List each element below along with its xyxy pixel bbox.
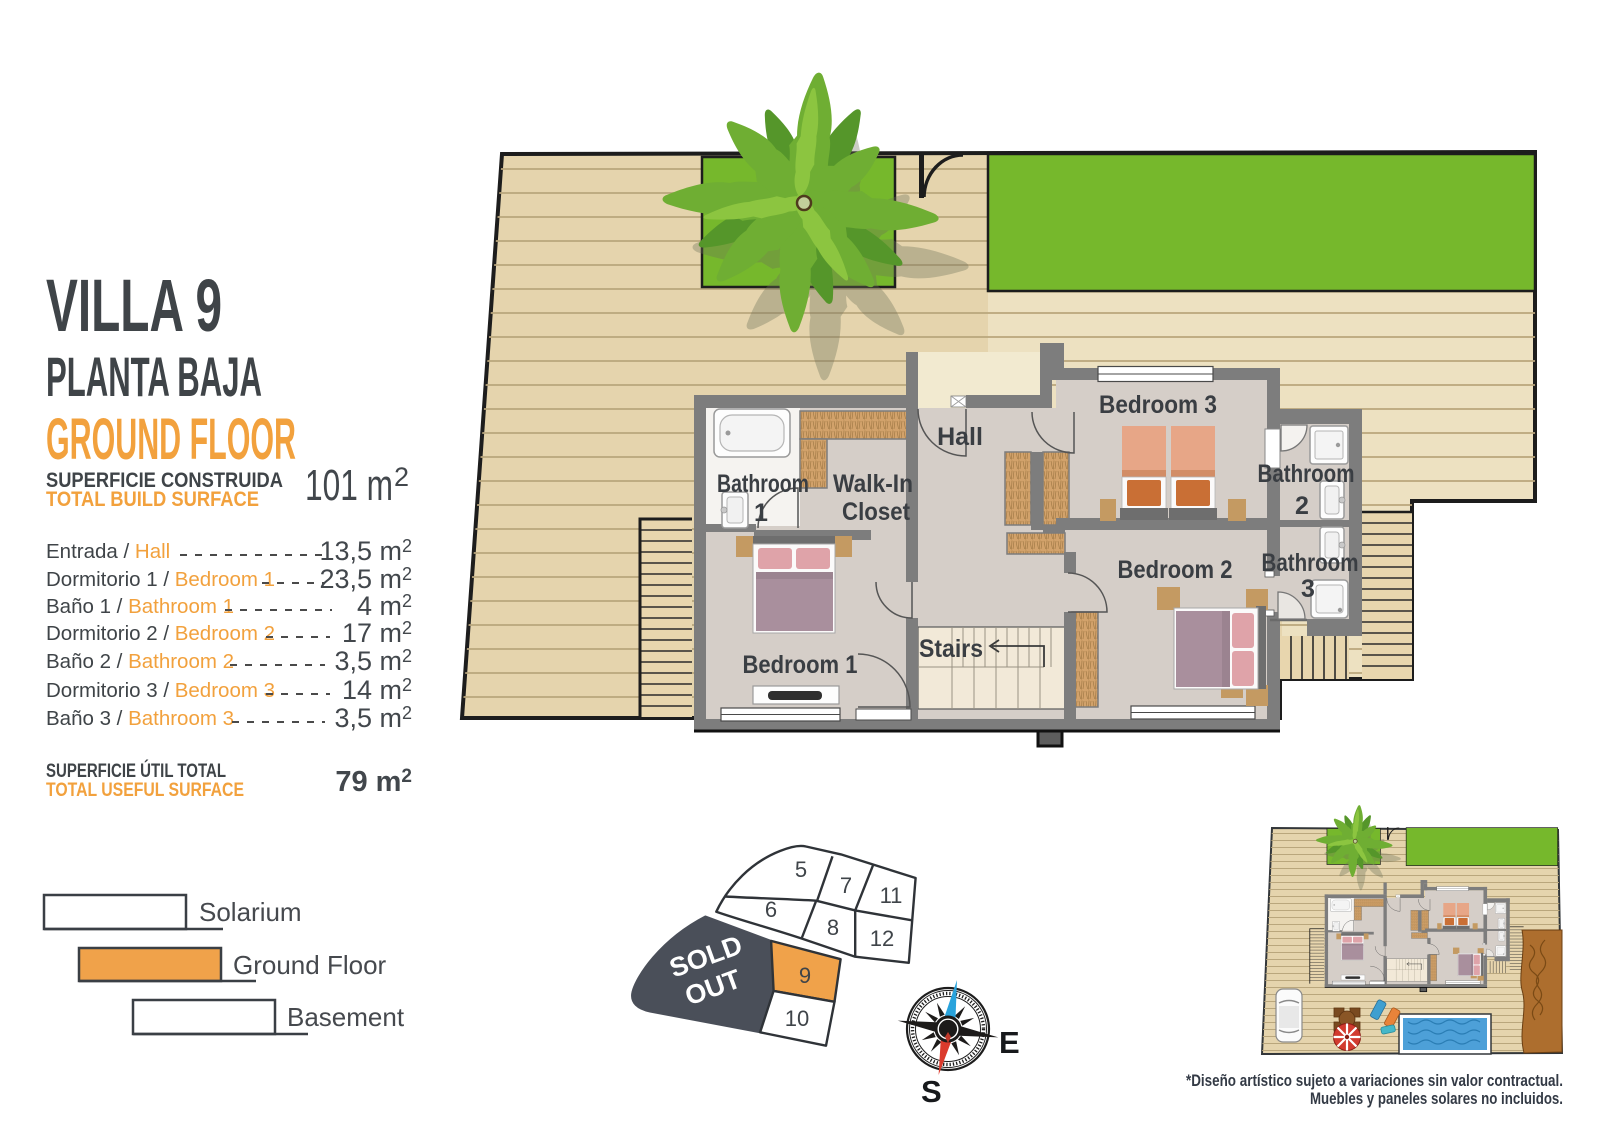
- svg-text:1: 1: [754, 499, 768, 527]
- svg-text:7: 7: [840, 873, 852, 898]
- svg-text:2: 2: [1295, 492, 1309, 520]
- svg-text:5: 5: [795, 857, 807, 882]
- svg-text:17 m2: 17 m2: [342, 618, 412, 648]
- svg-text:Basement: Basement: [287, 1002, 405, 1032]
- svg-text:Bathroom: Bathroom: [1262, 549, 1359, 577]
- svg-text:10: 10: [785, 1006, 809, 1031]
- svg-text:Baño 1 / Bathroom 1: Baño 1 / Bathroom 1: [46, 595, 234, 618]
- svg-text:Baño 3 / Bathroom 3: Baño 3 / Bathroom 3: [46, 707, 234, 730]
- svg-text:3: 3: [1301, 575, 1315, 603]
- svg-text:Baño 2 / Bathroom 2: Baño 2 / Bathroom 2: [46, 650, 234, 673]
- svg-text:Bedroom 2: Bedroom 2: [1118, 556, 1233, 584]
- svg-text:13,5 m2: 13,5 m2: [319, 536, 412, 566]
- svg-text:Dormitorio 3 / Bedroom 3: Dormitorio 3 / Bedroom 3: [46, 679, 275, 702]
- svg-text:11: 11: [880, 883, 903, 908]
- svg-text:TOTAL BUILD SURFACE: TOTAL BUILD SURFACE: [46, 488, 259, 511]
- svg-text:GROUND FLOOR: GROUND FLOOR: [46, 407, 296, 472]
- svg-text:Dormitorio 2 / Bedroom 2: Dormitorio 2 / Bedroom 2: [46, 622, 275, 645]
- svg-text:Entrada / Hall: Entrada / Hall: [46, 540, 170, 563]
- svg-text:Closet: Closet: [842, 498, 911, 526]
- svg-text:Bathroom: Bathroom: [1258, 460, 1355, 488]
- svg-text:6: 6: [765, 897, 777, 922]
- svg-text:3,5 m2: 3,5 m2: [334, 646, 412, 676]
- svg-text:S: S: [921, 1074, 942, 1109]
- svg-text:SUPERFICIE ÚTIL TOTAL: SUPERFICIE ÚTIL TOTAL: [46, 760, 226, 782]
- svg-text:VILLA 9: VILLA 9: [46, 264, 222, 347]
- svg-text:3,5 m2: 3,5 m2: [334, 703, 412, 733]
- svg-text:PLANTA BAJA: PLANTA BAJA: [46, 345, 262, 408]
- svg-text:Solarium: Solarium: [199, 897, 302, 927]
- svg-text:Bathroom: Bathroom: [717, 470, 809, 498]
- svg-text:*Diseño artístico sujeto a var: *Diseño artístico sujeto a variaciones s…: [1186, 1071, 1563, 1090]
- svg-text:9: 9: [799, 963, 811, 988]
- svg-text:14 m2: 14 m2: [342, 675, 412, 705]
- svg-text:Bedroom 3: Bedroom 3: [1099, 391, 1217, 419]
- svg-text:Ground Floor: Ground Floor: [233, 950, 387, 980]
- svg-text:TOTAL USEFUL SURFACE: TOTAL USEFUL SURFACE: [46, 780, 244, 801]
- svg-text:8: 8: [827, 915, 839, 940]
- svg-text:2: 2: [394, 462, 409, 492]
- svg-text:Bedroom 1: Bedroom 1: [743, 651, 858, 679]
- svg-text:E: E: [999, 1025, 1020, 1060]
- svg-text:Hall: Hall: [937, 423, 983, 451]
- svg-text:101 m: 101 m: [305, 461, 393, 510]
- svg-text:79 m2: 79 m2: [335, 766, 412, 798]
- svg-text:Stairs: Stairs: [919, 635, 983, 663]
- svg-text:Walk-In: Walk-In: [833, 470, 913, 498]
- svg-text:23,5 m2: 23,5 m2: [319, 564, 412, 594]
- svg-text:Dormitorio 1 / Bedroom 1: Dormitorio 1 / Bedroom 1: [46, 568, 275, 591]
- svg-text:Muebles y paneles solares no i: Muebles y paneles solares no incluidos.: [1310, 1089, 1563, 1108]
- svg-text:12: 12: [870, 926, 894, 951]
